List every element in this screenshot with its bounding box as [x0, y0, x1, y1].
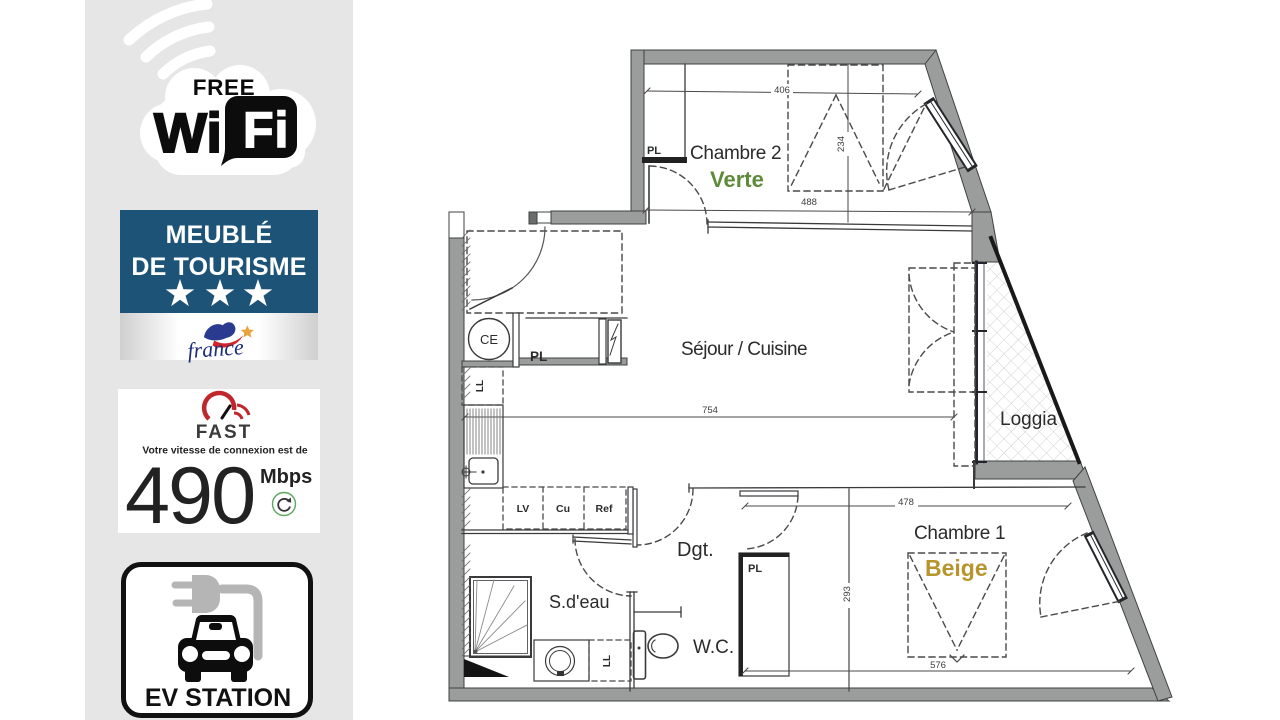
svg-text:PL: PL	[647, 145, 661, 157]
svg-text:406: 406	[774, 85, 790, 96]
svg-text:Verte: Verte	[710, 167, 764, 192]
svg-text:Loggia: Loggia	[1000, 409, 1057, 430]
svg-text:293: 293	[842, 586, 853, 602]
svg-text:234: 234	[836, 136, 847, 152]
svg-text:LL: LL	[475, 380, 486, 392]
svg-text:488: 488	[801, 197, 817, 208]
svg-text:Ref: Ref	[596, 503, 613, 515]
svg-text:S.d'eau: S.d'eau	[549, 592, 610, 612]
svg-text:Chambre 2: Chambre 2	[690, 143, 781, 164]
svg-text:754: 754	[702, 405, 718, 416]
svg-text:Wi: Wi	[154, 101, 222, 164]
svg-text:LV: LV	[517, 503, 530, 515]
svg-text:EV STATION: EV STATION	[145, 684, 291, 712]
svg-text:france: france	[187, 334, 245, 363]
svg-text:W.C.: W.C.	[693, 637, 734, 658]
svg-text:Mbps: Mbps	[260, 466, 312, 488]
svg-text:478: 478	[898, 497, 914, 508]
svg-text:Cu: Cu	[556, 503, 570, 515]
svg-text:576: 576	[930, 660, 946, 671]
svg-text:FAST: FAST	[196, 422, 253, 443]
svg-text:Séjour / Cuisine: Séjour / Cuisine	[681, 339, 807, 360]
svg-text:PL: PL	[530, 349, 547, 364]
svg-text:Chambre 1: Chambre 1	[914, 523, 1005, 544]
svg-text:LL: LL	[602, 655, 613, 667]
svg-text:490: 490	[125, 451, 254, 533]
svg-text:Dgt.: Dgt.	[677, 539, 714, 561]
svg-text:PL: PL	[748, 563, 762, 575]
svg-text:Fi: Fi	[243, 102, 289, 158]
svg-text:Beige: Beige	[925, 555, 988, 581]
svg-text:CE: CE	[480, 332, 498, 347]
